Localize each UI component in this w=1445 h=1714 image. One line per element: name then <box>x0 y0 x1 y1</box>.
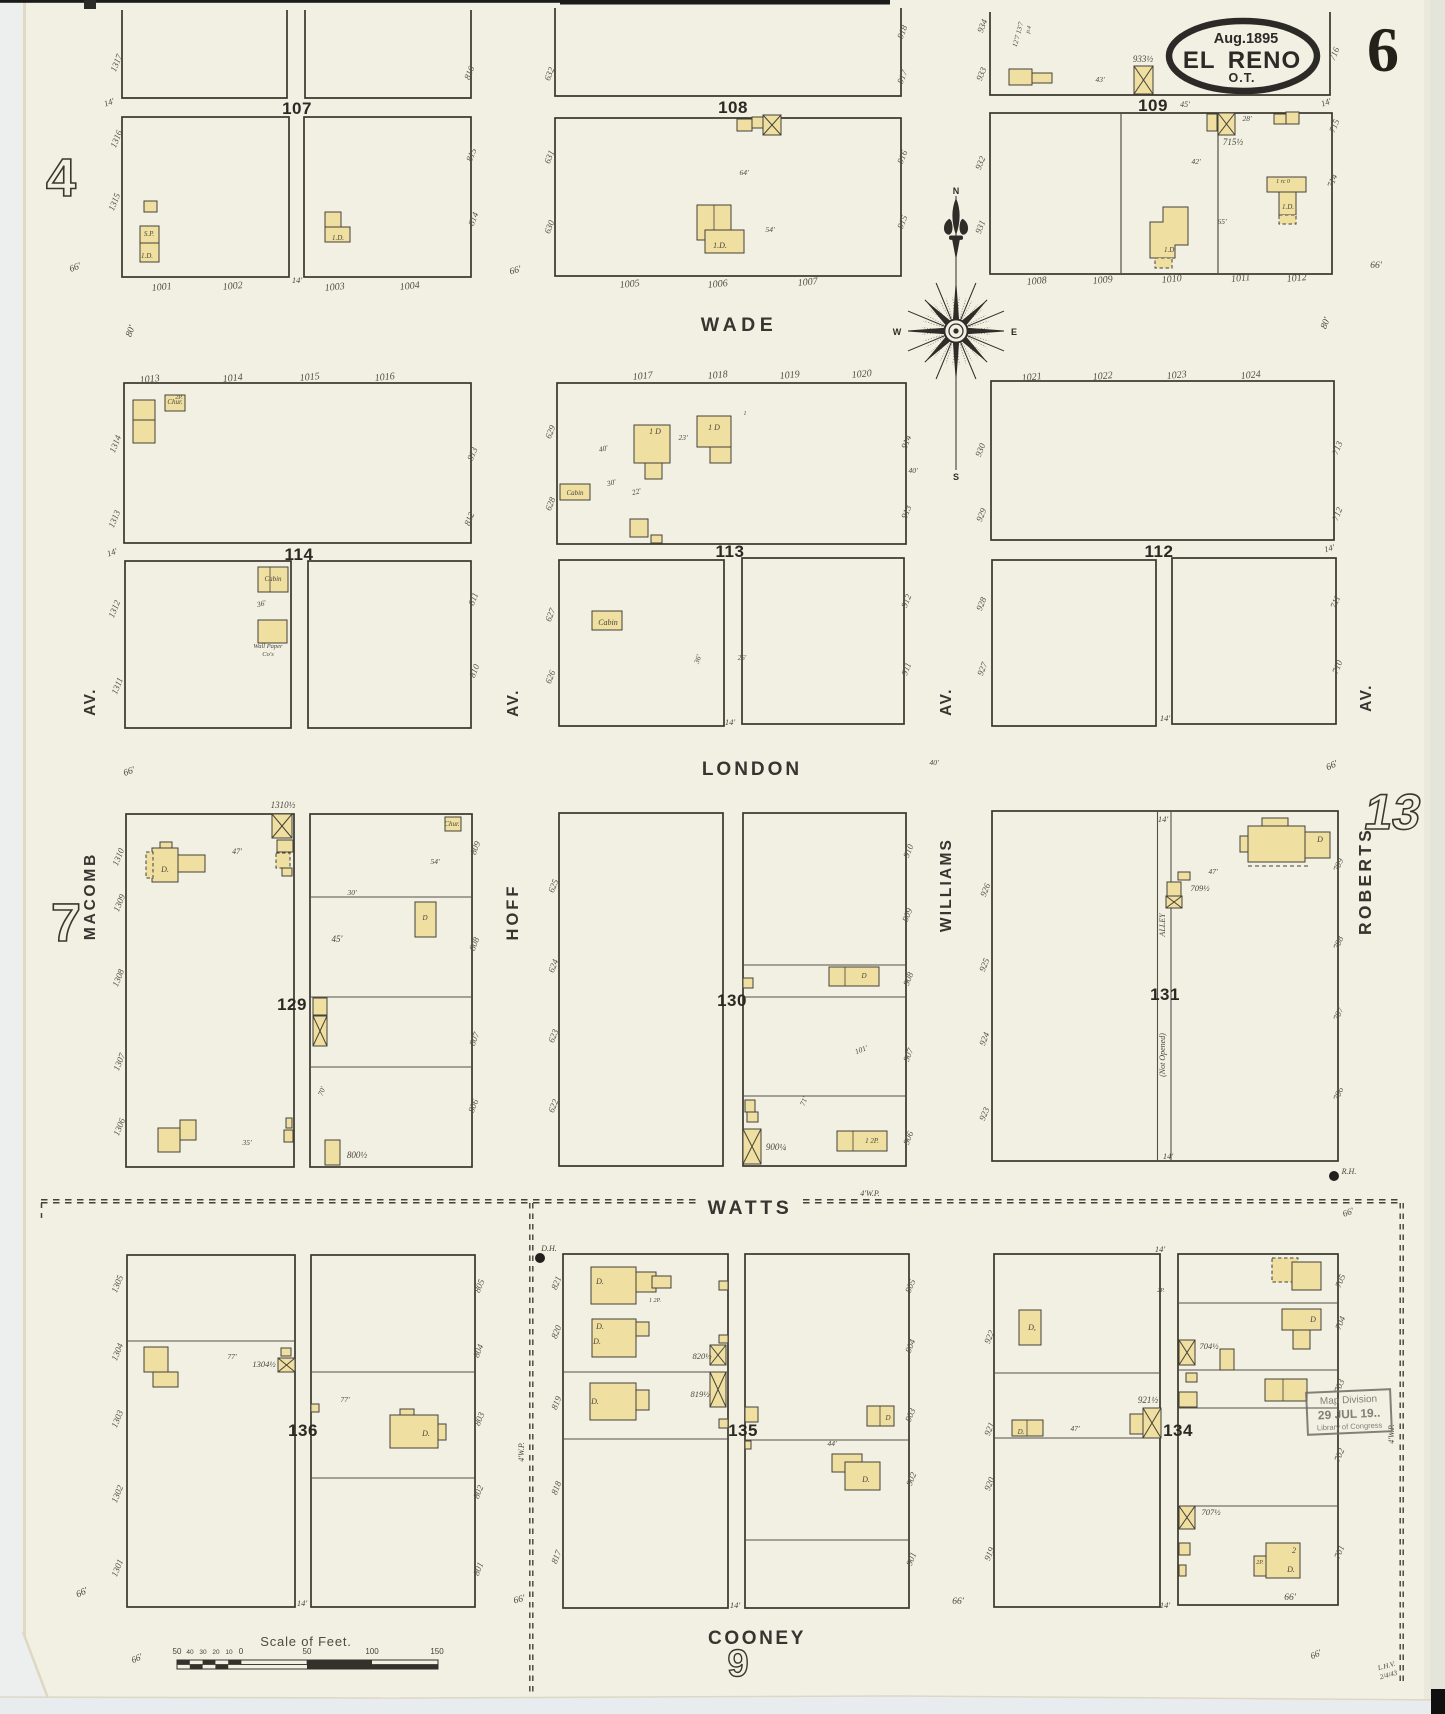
svg-text:AV.: AV. <box>938 688 955 716</box>
svg-text:820½: 820½ <box>692 1351 712 1361</box>
svg-text:1019: 1019 <box>779 369 800 382</box>
svg-text:20: 20 <box>212 1649 220 1656</box>
svg-text:1024: 1024 <box>1240 369 1261 382</box>
svg-text:933½: 933½ <box>1133 54 1154 64</box>
svg-text:14': 14' <box>730 1600 741 1610</box>
svg-text:66': 66' <box>1370 261 1383 271</box>
svg-text:AV.: AV. <box>505 689 522 717</box>
svg-text:D.: D. <box>595 1277 604 1286</box>
svg-text:35': 35' <box>241 1138 252 1147</box>
svg-text:1015: 1015 <box>299 371 320 384</box>
svg-text:1007: 1007 <box>797 276 819 289</box>
svg-text:77': 77' <box>227 1352 237 1361</box>
svg-text:40': 40' <box>929 758 939 767</box>
svg-text:D.: D. <box>160 865 169 874</box>
svg-text:1 D: 1 D <box>708 423 720 432</box>
svg-text:7: 7 <box>51 893 81 953</box>
svg-text:2: 2 <box>1292 1546 1296 1555</box>
svg-text:130: 130 <box>717 991 747 1010</box>
svg-text:1310½: 1310½ <box>271 800 296 810</box>
svg-text:1023: 1023 <box>1166 369 1187 382</box>
svg-text:4'W.P.: 4'W.P. <box>517 1442 526 1462</box>
svg-text:1.D.: 1.D. <box>713 241 727 250</box>
svg-text:1005: 1005 <box>619 278 640 291</box>
svg-text:HOFF: HOFF <box>504 884 522 941</box>
svg-text:113: 113 <box>716 542 745 561</box>
svg-text:800½: 800½ <box>347 1150 368 1160</box>
svg-text:112: 112 <box>1145 542 1174 561</box>
svg-text:134: 134 <box>1163 1421 1193 1440</box>
svg-text:R.H.: R.H. <box>1341 1167 1357 1176</box>
svg-text:Aug.1895: Aug.1895 <box>1214 31 1278 47</box>
svg-text:1.D.: 1.D. <box>1282 203 1294 211</box>
svg-text:O.T.: O.T. <box>1229 71 1256 85</box>
svg-text:EL RENO: EL RENO <box>1183 47 1301 74</box>
svg-text:N: N <box>953 186 960 196</box>
svg-text:14': 14' <box>1158 814 1169 824</box>
svg-text:D.: D. <box>595 1322 604 1331</box>
svg-text:135: 135 <box>728 1421 758 1440</box>
svg-text:66': 66' <box>952 1597 965 1607</box>
svg-text:26': 26' <box>738 654 747 662</box>
svg-text:1017: 1017 <box>632 370 654 383</box>
svg-text:AV.: AV. <box>82 688 99 716</box>
svg-text:129: 129 <box>277 995 307 1014</box>
svg-text:D.: D. <box>421 1429 430 1438</box>
svg-text:43': 43' <box>1095 75 1105 84</box>
svg-text:30': 30' <box>346 888 357 897</box>
svg-text:Co's: Co's <box>262 651 274 658</box>
svg-text:1008: 1008 <box>1026 275 1047 288</box>
svg-text:921½: 921½ <box>1138 1395 1159 1405</box>
svg-text:MACOMB: MACOMB <box>82 852 99 940</box>
svg-text:40': 40' <box>908 466 918 475</box>
svg-text:13: 13 <box>1360 783 1426 840</box>
svg-text:D,: D, <box>1027 1323 1036 1332</box>
svg-text:109: 109 <box>1138 96 1168 115</box>
svg-text:AV.: AV. <box>1358 684 1375 712</box>
svg-text:40: 40 <box>186 1649 194 1656</box>
svg-text:1003: 1003 <box>324 281 345 294</box>
svg-text:14': 14' <box>1155 1244 1166 1254</box>
svg-text:(Not Opened): (Not Opened) <box>1158 1033 1167 1077</box>
svg-text:D.: D. <box>592 1337 601 1346</box>
svg-text:14': 14' <box>725 717 736 727</box>
svg-text:W: W <box>893 327 902 337</box>
svg-text:1014: 1014 <box>222 372 243 385</box>
svg-text:1.D.: 1.D. <box>141 252 153 260</box>
svg-text:1012: 1012 <box>1286 272 1307 285</box>
svg-text:14': 14' <box>1163 1151 1174 1161</box>
svg-text:107: 107 <box>282 99 312 118</box>
svg-text:54': 54' <box>430 857 440 866</box>
svg-text:1 D: 1 D <box>649 427 661 436</box>
svg-text:1304½: 1304½ <box>252 1359 276 1369</box>
svg-text:44': 44' <box>827 1439 837 1448</box>
svg-text:1: 1 <box>744 411 747 417</box>
svg-text:S: S <box>953 472 959 482</box>
svg-text:10: 10 <box>225 1649 233 1656</box>
svg-text:1004: 1004 <box>399 280 420 293</box>
svg-text:D: D <box>421 914 427 922</box>
svg-text:47': 47' <box>1208 867 1218 876</box>
svg-text:D.: D. <box>1286 1565 1295 1574</box>
svg-text:108: 108 <box>718 98 748 117</box>
svg-text:Chur.: Chur. <box>444 820 460 828</box>
svg-text:14': 14' <box>297 1598 308 1608</box>
svg-text:Cabin: Cabin <box>598 618 618 627</box>
svg-text:1021: 1021 <box>1021 371 1042 384</box>
svg-text:23': 23' <box>678 433 688 442</box>
svg-text:65': 65' <box>1217 217 1227 226</box>
svg-text:COONEY: COONEY <box>708 1628 806 1649</box>
svg-text:1 2P.: 1 2P. <box>865 1137 879 1145</box>
svg-text:WADE: WADE <box>701 314 778 336</box>
svg-text:45': 45' <box>1180 100 1190 109</box>
svg-text:704½: 704½ <box>1199 1341 1219 1351</box>
svg-text:707½: 707½ <box>1201 1507 1221 1517</box>
svg-text:D.: D. <box>1017 1428 1025 1436</box>
svg-text:WILLIAMS: WILLIAMS <box>938 838 955 932</box>
svg-text:LONDON: LONDON <box>702 759 802 780</box>
svg-text:50: 50 <box>173 1647 182 1656</box>
svg-text:14': 14' <box>1160 1600 1171 1610</box>
svg-text:50: 50 <box>303 1647 312 1656</box>
svg-text:77': 77' <box>340 1395 350 1404</box>
svg-text:2P.: 2P. <box>175 395 182 401</box>
svg-text:D: D <box>1309 1315 1316 1324</box>
svg-text:E: E <box>1011 327 1017 337</box>
svg-text:819½: 819½ <box>690 1389 710 1399</box>
svg-text:29 JUL 19..: 29 JUL 19.. <box>1318 1406 1381 1423</box>
svg-text:4: 4 <box>46 148 76 208</box>
svg-text:2P.: 2P. <box>1256 1560 1263 1566</box>
svg-text:900¼: 900¼ <box>766 1142 787 1152</box>
svg-text:45': 45' <box>332 934 344 944</box>
svg-text:30: 30 <box>199 1649 207 1656</box>
svg-text:4'W.P.: 4'W.P. <box>860 1189 880 1198</box>
svg-text:131: 131 <box>1150 985 1180 1004</box>
svg-text:1002: 1002 <box>222 280 243 293</box>
svg-text:ROBERTS: ROBERTS <box>1355 827 1375 935</box>
svg-text:1016: 1016 <box>374 371 395 384</box>
svg-text:709½: 709½ <box>1190 883 1210 893</box>
svg-text:47': 47' <box>232 847 242 856</box>
svg-text:1.D.: 1.D. <box>1164 246 1176 254</box>
svg-text:1020: 1020 <box>851 368 872 381</box>
svg-text:1018: 1018 <box>707 369 728 382</box>
svg-text:0: 0 <box>239 1647 244 1656</box>
svg-text:WATTS: WATTS <box>708 1197 793 1219</box>
svg-text:715½: 715½ <box>1223 137 1244 147</box>
svg-text:9: 9 <box>727 1643 748 1685</box>
svg-text:Wall Paper: Wall Paper <box>253 643 283 650</box>
svg-text:1 rc 0: 1 rc 0 <box>1276 179 1290 185</box>
svg-text:54': 54' <box>765 225 775 234</box>
svg-text:2P.: 2P. <box>1157 1288 1164 1294</box>
svg-text:1009: 1009 <box>1092 274 1113 287</box>
svg-text:47': 47' <box>1070 1424 1080 1433</box>
svg-text:D.: D. <box>590 1397 599 1406</box>
svg-text:1 2P.: 1 2P. <box>649 1298 661 1304</box>
svg-text:100: 100 <box>365 1647 379 1656</box>
svg-text:64': 64' <box>739 168 749 177</box>
svg-text:1006: 1006 <box>707 278 728 291</box>
svg-text:1.D.: 1.D. <box>332 234 344 242</box>
svg-text:28': 28' <box>1242 114 1252 123</box>
svg-text:1001: 1001 <box>151 281 172 294</box>
svg-text:1011: 1011 <box>1231 272 1251 285</box>
svg-text:D.: D. <box>861 1475 870 1484</box>
svg-text:1013: 1013 <box>139 373 160 386</box>
svg-text:D: D <box>884 1414 890 1422</box>
svg-text:114: 114 <box>285 545 314 564</box>
svg-text:S.P.: S.P. <box>144 230 155 238</box>
svg-text:D: D <box>860 972 866 980</box>
svg-text:D.H.: D.H. <box>540 1244 557 1253</box>
svg-text:136: 136 <box>288 1421 318 1440</box>
svg-text:14': 14' <box>1160 713 1171 723</box>
svg-text:150: 150 <box>430 1647 444 1656</box>
svg-text:1010: 1010 <box>1161 273 1182 286</box>
svg-text:14': 14' <box>292 275 303 285</box>
svg-text:42': 42' <box>1191 157 1201 166</box>
svg-text:1022: 1022 <box>1092 370 1113 383</box>
svg-text:6: 6 <box>1367 14 1399 85</box>
svg-text:D: D <box>1316 835 1323 844</box>
svg-text:ALLEY: ALLEY <box>1158 912 1167 938</box>
svg-text:66': 66' <box>1284 1593 1297 1603</box>
svg-text:Cabin: Cabin <box>566 489 584 497</box>
svg-text:Cabin: Cabin <box>264 575 282 583</box>
